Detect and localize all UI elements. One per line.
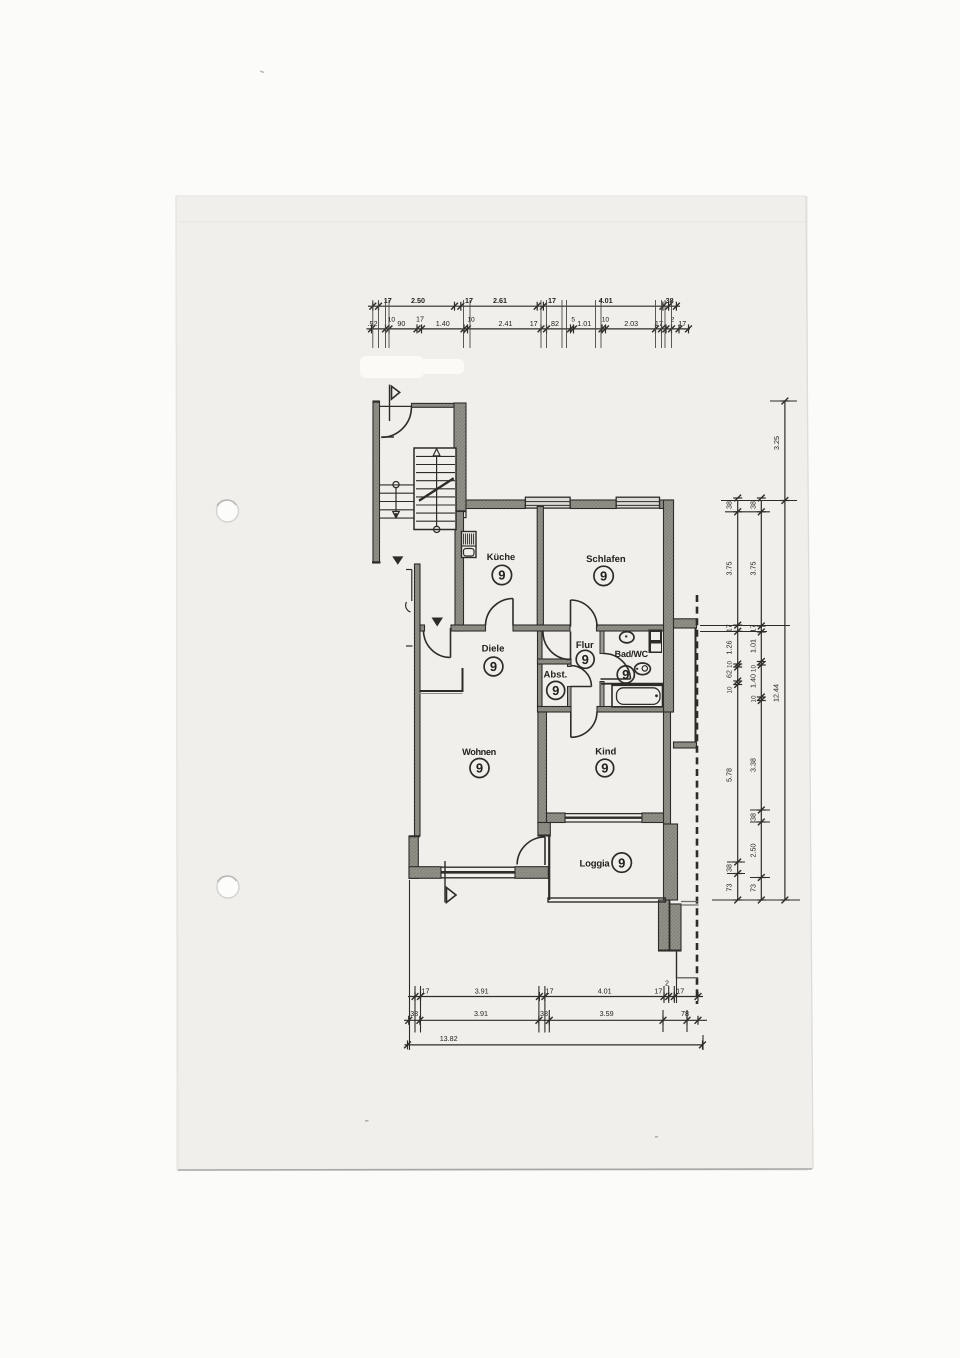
svg-text:10: 10 (727, 686, 734, 694)
svg-text:17: 17 (530, 319, 538, 328)
svg-text:1.01: 1.01 (748, 639, 757, 653)
svg-text:17: 17 (654, 986, 662, 995)
svg-text:3.75: 3.75 (748, 562, 757, 576)
svg-text:1.26: 1.26 (725, 641, 734, 655)
svg-text:38: 38 (725, 501, 734, 509)
svg-text:9: 9 (476, 761, 483, 776)
svg-text:17: 17 (416, 315, 424, 324)
svg-text:9: 9 (600, 569, 607, 584)
svg-text:9: 9 (498, 568, 505, 583)
svg-text:38: 38 (410, 1009, 418, 1018)
svg-text:90: 90 (397, 319, 405, 328)
svg-text:5: 5 (571, 317, 575, 324)
svg-text:17: 17 (422, 986, 430, 995)
svg-text:3.91: 3.91 (474, 1009, 488, 1018)
svg-text:9: 9 (582, 652, 589, 667)
svg-text:73: 73 (725, 884, 734, 892)
svg-text:2.61: 2.61 (493, 296, 507, 305)
svg-text:Bad/WC: Bad/WC (615, 649, 649, 659)
svg-text:17: 17 (465, 296, 473, 305)
svg-text:78: 78 (681, 1009, 689, 1018)
svg-text:4.01: 4.01 (598, 986, 612, 995)
svg-text:3.91: 3.91 (475, 986, 489, 995)
svg-text:9: 9 (601, 761, 608, 776)
svg-text:38: 38 (540, 1009, 548, 1018)
svg-text:9: 9 (618, 855, 625, 870)
svg-text:10: 10 (750, 695, 757, 703)
svg-text:38: 38 (748, 813, 757, 821)
svg-text:2.41: 2.41 (499, 319, 513, 328)
svg-text:17: 17 (678, 319, 686, 328)
svg-text:9: 9 (490, 659, 497, 674)
svg-text:17: 17 (548, 296, 556, 305)
svg-text:Abst.: Abst. (544, 670, 568, 681)
svg-text:3.75: 3.75 (725, 562, 734, 576)
svg-text:2.50: 2.50 (748, 844, 757, 858)
svg-text:17: 17 (384, 296, 392, 305)
svg-text:2.03: 2.03 (624, 319, 638, 328)
svg-text:1.40: 1.40 (748, 674, 757, 688)
svg-text:10: 10 (467, 317, 475, 324)
svg-text:9: 9 (622, 667, 629, 682)
svg-text:3.25: 3.25 (772, 436, 781, 450)
svg-text:82: 82 (551, 319, 559, 328)
svg-text:38: 38 (748, 501, 757, 509)
svg-text:17: 17 (546, 986, 554, 995)
svg-text:62: 62 (725, 670, 734, 678)
svg-text:1.40: 1.40 (436, 319, 450, 328)
svg-text:17: 17 (676, 986, 684, 995)
svg-text:2.50: 2.50 (411, 296, 425, 305)
svg-text:12.44: 12.44 (772, 684, 781, 702)
svg-text:10: 10 (602, 317, 610, 324)
svg-text:Flur: Flur (576, 640, 594, 651)
svg-text:9: 9 (552, 683, 559, 698)
svg-text:3.38: 3.38 (748, 758, 757, 772)
svg-text:73: 73 (748, 884, 757, 892)
svg-text:Schlafen: Schlafen (586, 554, 626, 565)
svg-text:Loggia: Loggia (580, 859, 611, 870)
svg-text:10: 10 (750, 665, 757, 673)
svg-text:Kind: Kind (595, 747, 616, 758)
svg-text:Diele: Diele (482, 644, 505, 655)
svg-text:10: 10 (727, 661, 734, 669)
svg-text:1.01: 1.01 (577, 319, 591, 328)
svg-text:Wohnen: Wohnen (462, 747, 496, 757)
svg-text:5.78: 5.78 (725, 768, 734, 782)
svg-text:38: 38 (725, 864, 734, 872)
svg-text:Küche: Küche (487, 552, 515, 562)
svg-text:38: 38 (666, 296, 674, 305)
svg-text:13.82: 13.82 (440, 1034, 458, 1043)
svg-text:3.59: 3.59 (600, 1009, 614, 1018)
